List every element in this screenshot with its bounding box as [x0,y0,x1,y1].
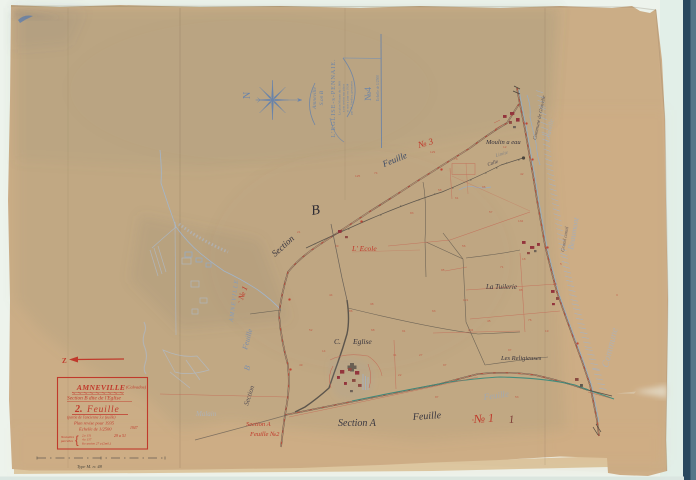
svg-text:№ 1: № 1 [472,411,494,426]
svg-text:52: 52 [309,328,313,332]
svg-text:Eglise: Eglise [352,337,372,346]
svg-text:Moulin a eau: Moulin a eau [485,139,521,146]
svg-text:73: 73 [454,157,458,161]
svg-text:132: 132 [518,219,523,223]
svg-text:Plan revise pour 1935: Plan revise pour 1935 [73,421,115,426]
svg-text:74: 74 [374,171,378,175]
svg-text:3: 3 [616,293,618,297]
svg-text:88: 88 [519,288,523,292]
svg-text:91: 91 [402,329,406,333]
svg-text:N: N [242,92,253,99]
svg-text:8.e ancien 27 a (2mil.): 8.e ancien 27 a (2mil.) [82,442,111,446]
svg-text:Z: Z [62,357,67,365]
svg-text:Section B dite de l'Eglise: Section B dite de l'Eglise [67,396,121,402]
svg-text:57: 57 [489,210,493,214]
svg-text:1947: 1947 [130,426,139,430]
svg-text:1: 1 [508,414,514,426]
svg-text:83: 83 [410,211,414,215]
svg-text:Section A: Section A [338,418,377,429]
svg-text:29 a 51: 29 a 51 [114,433,126,438]
svg-text:97: 97 [508,348,512,352]
svg-text:63: 63 [432,309,436,313]
svg-text:76: 76 [528,318,532,322]
svg-text:27: 27 [419,353,423,357]
svg-text:121: 121 [463,298,468,302]
svg-text:53: 53 [515,395,519,399]
svg-text:Echelle de 1/2500: Echelle de 1/2500 [376,75,380,101]
svg-text:22: 22 [398,373,402,377]
svg-text:71: 71 [500,265,504,269]
svg-text:Feuille №2: Feuille №2 [249,431,280,438]
svg-text:97: 97 [443,363,447,367]
svg-text:45: 45 [487,319,491,323]
svg-text:61: 61 [455,196,459,200]
svg-text:7: 7 [238,300,240,304]
svg-text:Les Religieuses: Les Religieuses [500,355,542,362]
svg-text:(partie de l'ancienne 3.e feui: (partie de l'ancienne 3.e feuille) [67,416,116,420]
svg-text:Feuille: Feuille [86,405,120,415]
svg-text:31: 31 [393,353,397,357]
svg-text:Echelle de 1/2500: Echelle de 1/2500 [78,427,112,432]
svg-text:58: 58 [438,188,442,192]
svg-text:Section A: Section A [246,421,271,428]
svg-text:Malain: Malain [195,410,217,418]
svg-text:86: 86 [349,309,353,313]
svg-text:129: 129 [430,150,435,154]
svg-text:39: 39 [335,244,339,248]
svg-text:44: 44 [329,293,333,297]
svg-text:Type M. n: 48: Type M. n: 48 [77,464,103,469]
svg-text:95: 95 [441,268,445,272]
svg-text:96: 96 [482,185,486,189]
svg-text:49: 49 [299,363,303,367]
svg-text:La Tuilerie: La Tuilerie [485,283,517,291]
svg-text:Feuille: Feuille [411,410,442,423]
svg-text:104: 104 [468,328,473,332]
svg-text:S.on B: S.on B [319,90,325,105]
svg-text:AMNEVILLE: AMNEVILLE [76,383,126,392]
svg-text:14: 14 [322,349,326,353]
svg-text:№4: №4 [364,87,374,101]
svg-text:24: 24 [553,282,557,286]
svg-text:5: 5 [560,262,562,266]
svg-text:19: 19 [545,329,549,333]
svg-text:38: 38 [370,302,374,306]
svg-text:56: 56 [462,244,466,248]
svg-text:68: 68 [371,328,375,332]
svg-text:L' Ecole: L' Ecole [351,244,377,253]
svg-text:{: { [75,435,79,447]
svg-text:18: 18 [522,257,526,261]
svg-text:C.: C. [334,337,341,346]
svg-text:125: 125 [355,174,360,178]
svg-text:21: 21 [297,230,301,234]
svg-text:87: 87 [435,395,439,399]
svg-text:42: 42 [520,172,524,176]
svg-text:(Calvados): (Calvados) [126,385,147,390]
svg-text:Amneville: Amneville [312,86,318,110]
svg-text:parcelles: parcelles [60,439,74,443]
svg-text:L'EGLISE-s-PENNAIE.: L'EGLISE-s-PENNAIE. [330,59,337,138]
svg-text:2.: 2. [74,404,83,415]
